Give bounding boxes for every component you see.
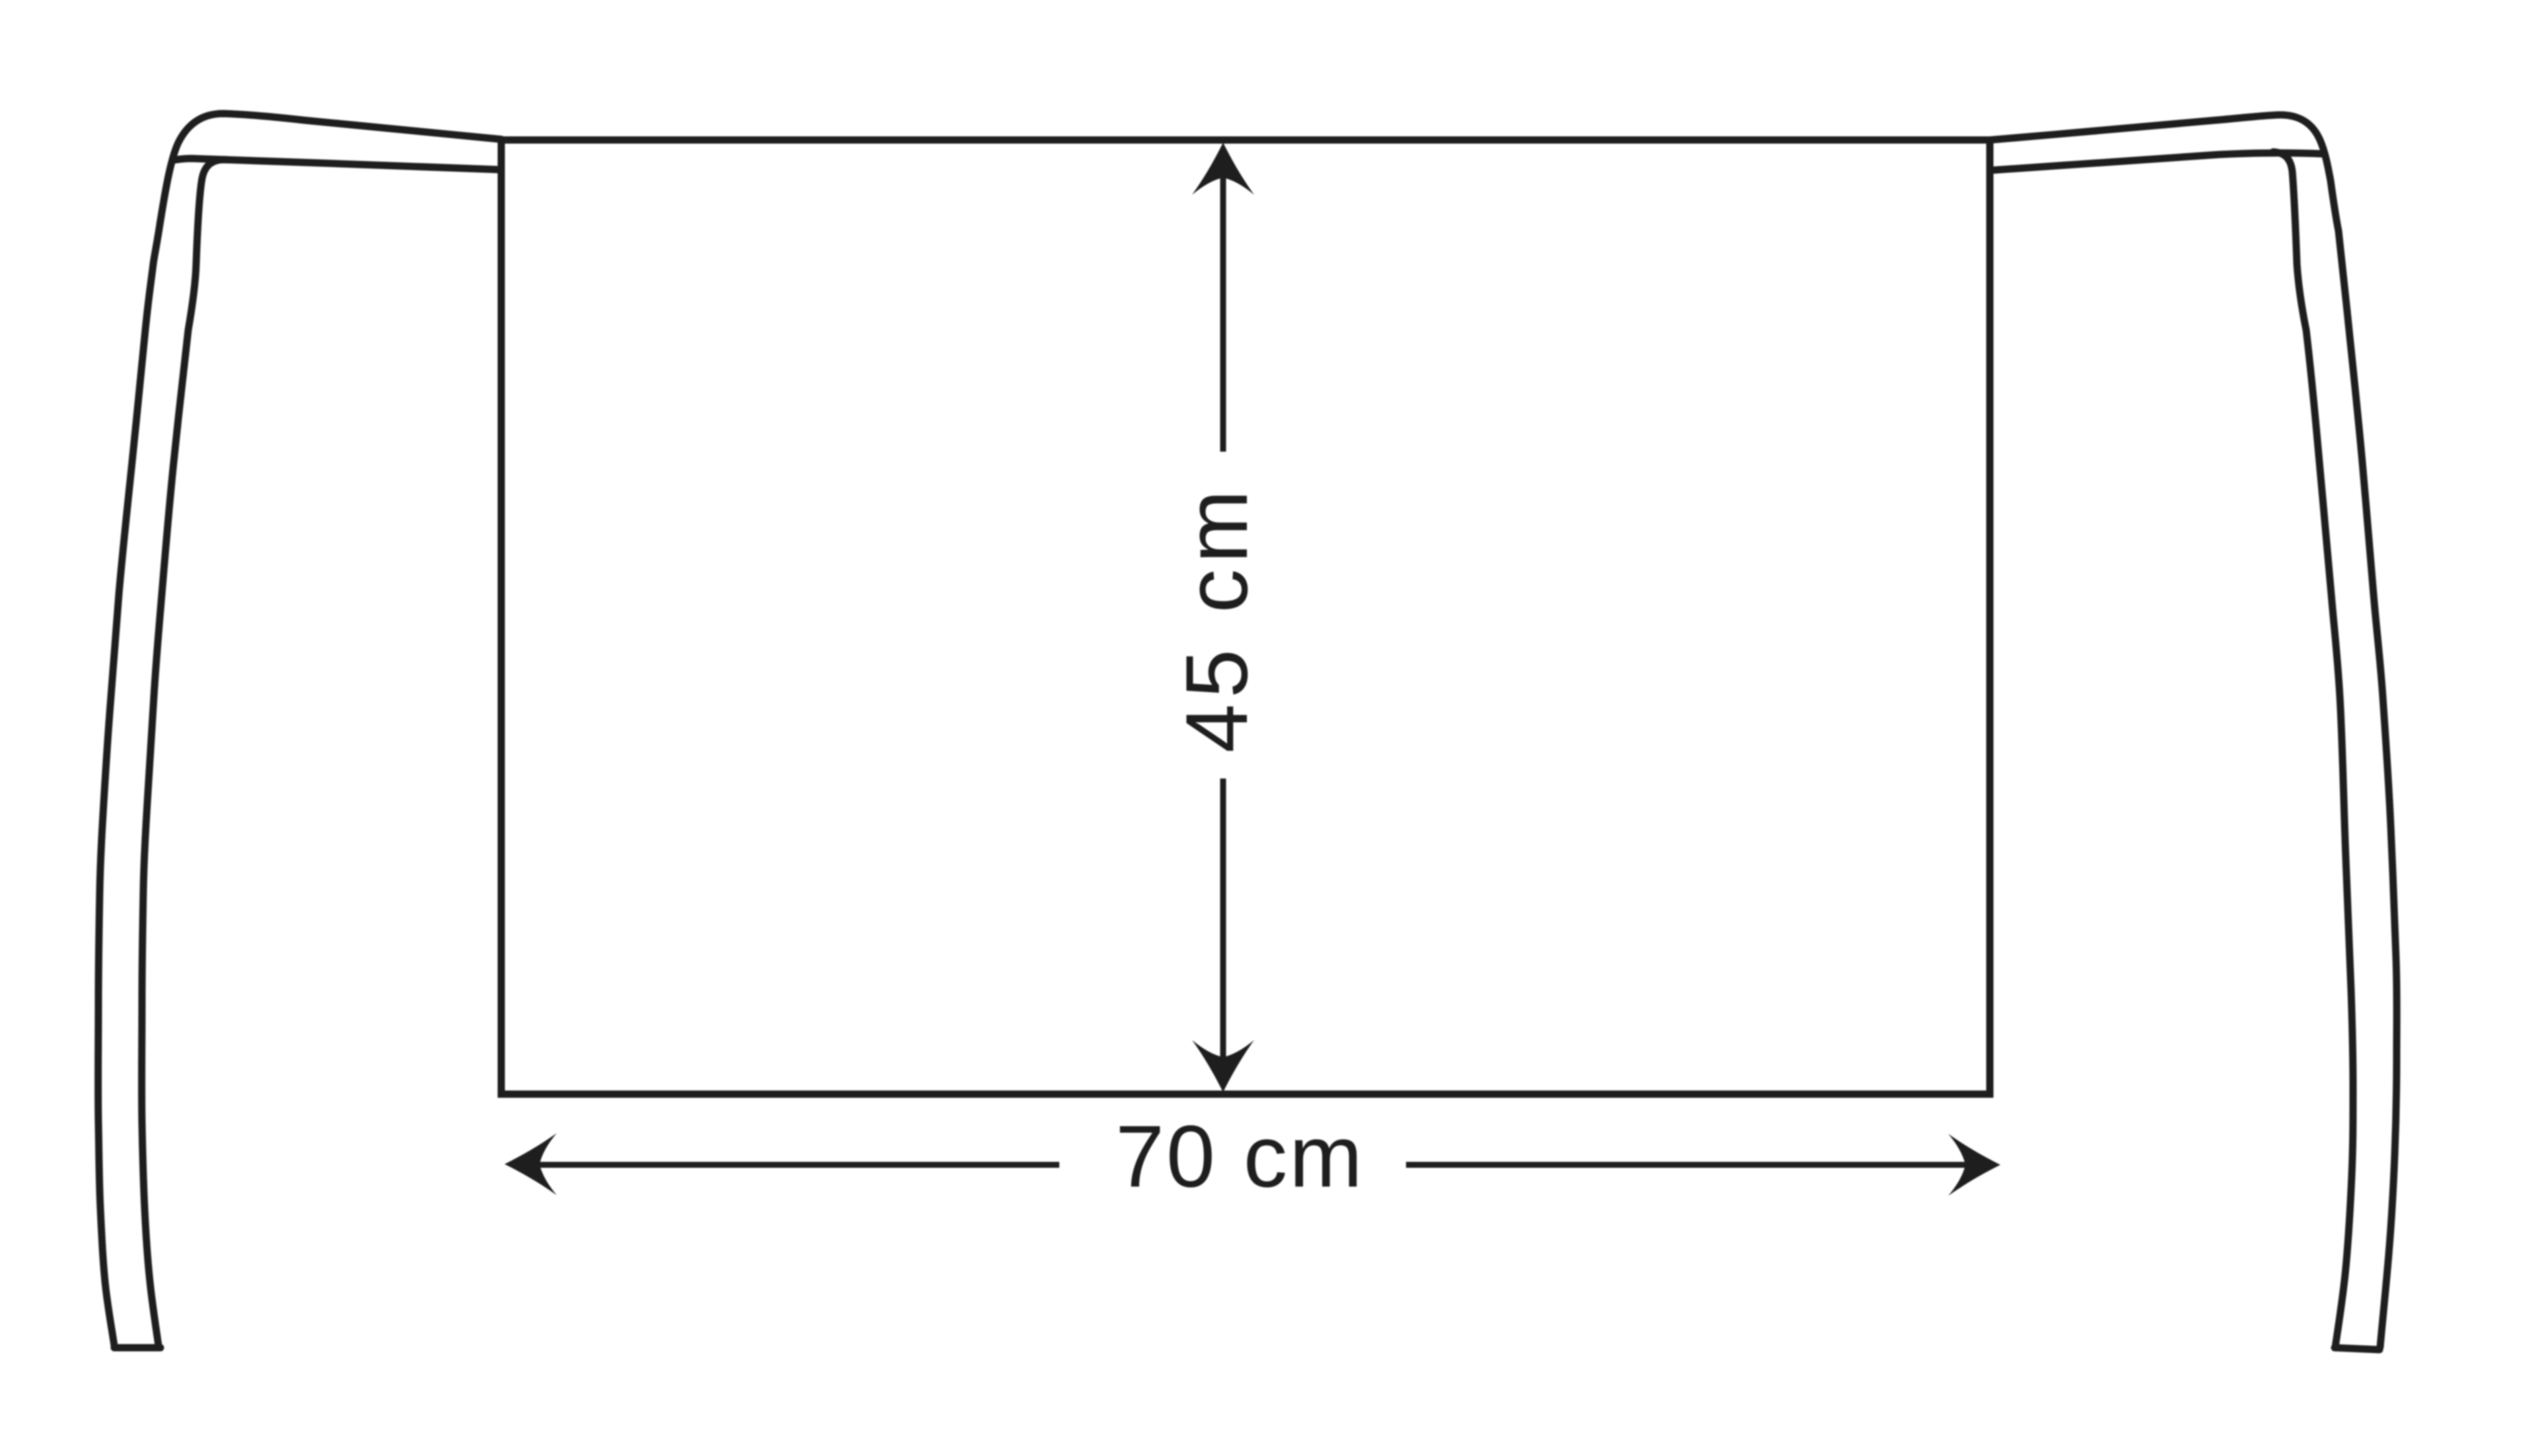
svg-text:45 cm: 45 cm [1168, 490, 1266, 753]
svg-text:70 cm: 70 cm [1115, 1108, 1362, 1206]
